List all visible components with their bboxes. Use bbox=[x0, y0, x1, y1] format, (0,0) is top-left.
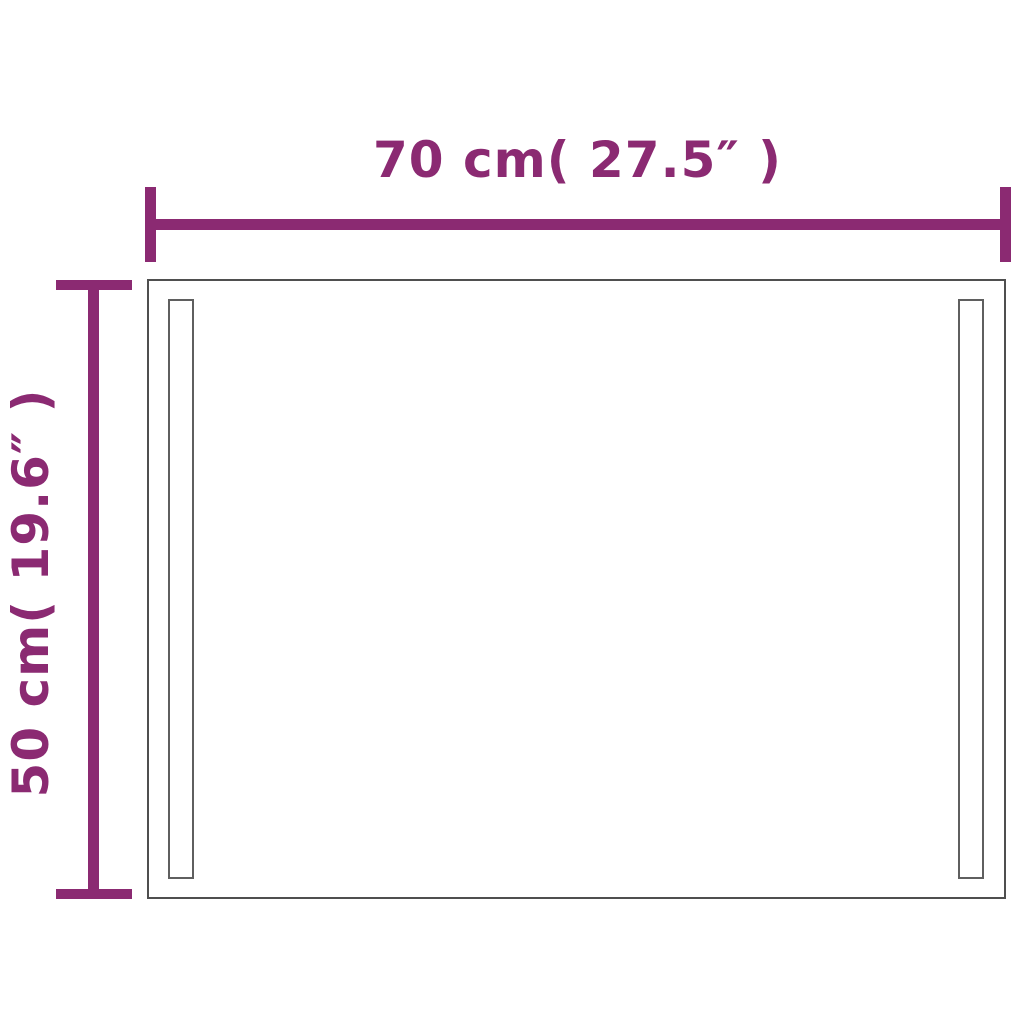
width-dimension-line bbox=[150, 219, 1005, 230]
height-dimension-bottom-cap bbox=[56, 889, 132, 899]
width-dimension-right-cap bbox=[1000, 187, 1011, 262]
width-dimension-left-cap bbox=[145, 187, 156, 262]
height-dimension-label: 50 cm( 19.6″ ) bbox=[2, 389, 60, 798]
led-strip-left bbox=[168, 299, 194, 879]
mirror-outline bbox=[147, 279, 1006, 899]
width-dimension-label: 70 cm( 27.5″ ) bbox=[150, 131, 1005, 189]
height-dimension-top-cap bbox=[56, 280, 132, 290]
led-strip-right bbox=[958, 299, 984, 879]
height-dimension-line bbox=[88, 285, 99, 894]
dimension-diagram: 70 cm( 27.5″ ) 50 cm( 19.6″ ) bbox=[0, 0, 1024, 1024]
